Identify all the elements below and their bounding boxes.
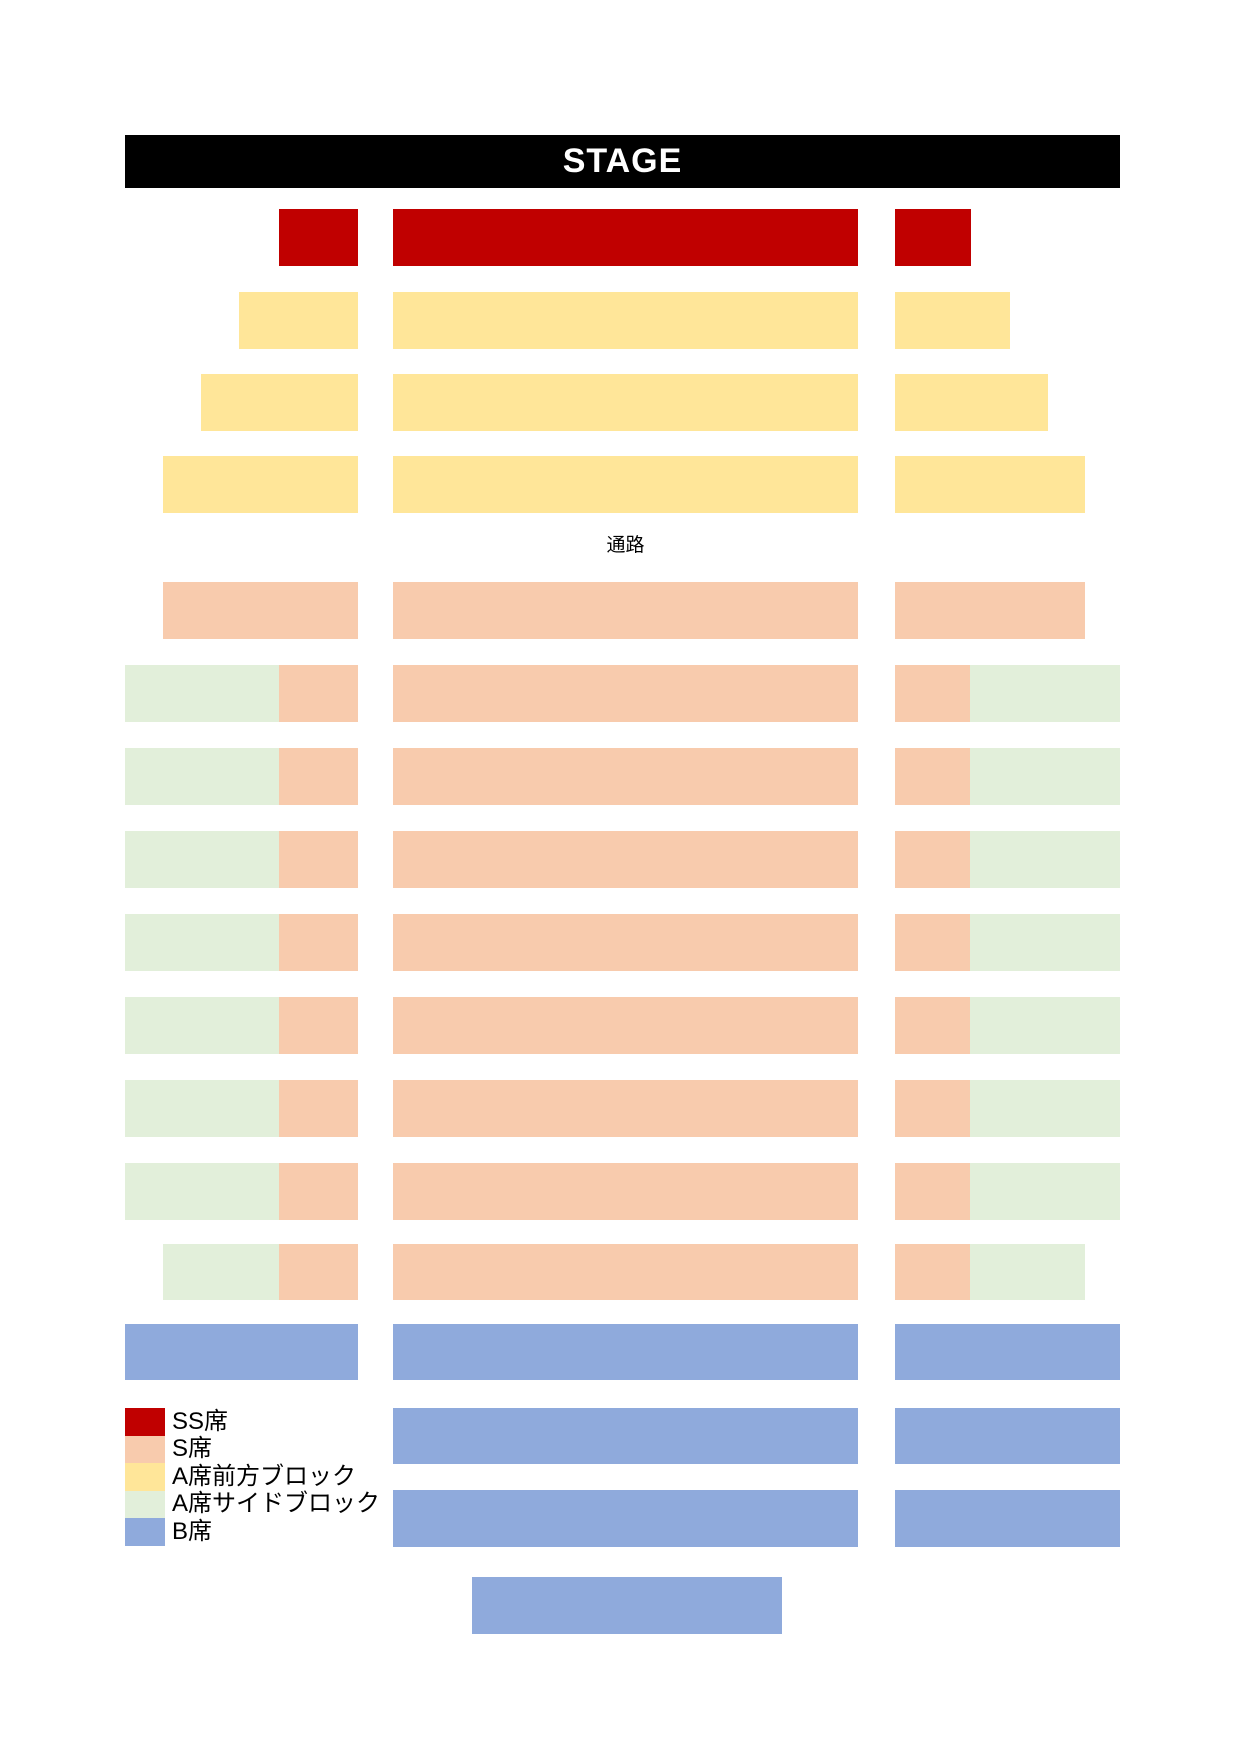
seat-block-s	[279, 665, 358, 722]
seat-block-a-side	[125, 665, 279, 722]
seat-block-a-front	[163, 456, 358, 513]
seat-block-a-side	[125, 914, 279, 971]
seat-block-s	[393, 582, 858, 639]
legend: SS席S席A席前方ブロックA席サイドブロックB席	[125, 1408, 380, 1546]
seat-block-b	[895, 1490, 1120, 1547]
seat-block-a-front	[895, 292, 1010, 349]
legend-label: A席前方ブロック	[172, 1465, 356, 1489]
seat-block-s	[279, 1244, 358, 1300]
seat-block-a-front	[393, 292, 858, 349]
seat-block-ss	[393, 209, 858, 266]
seat-block-a-side	[163, 1244, 279, 1300]
seat-block-s	[279, 1080, 358, 1137]
seat-block-s	[163, 582, 358, 639]
seat-block-b	[393, 1324, 858, 1380]
seat-block-s	[895, 997, 970, 1054]
seat-block-s	[279, 831, 358, 888]
seat-block-s	[895, 582, 1085, 639]
seat-block-a-side	[125, 748, 279, 805]
seat-block-ss	[279, 209, 358, 266]
seat-block-a-side	[125, 997, 279, 1054]
seat-block-s	[393, 665, 858, 722]
seat-block-s	[895, 1163, 970, 1220]
seat-block-a-front	[393, 374, 858, 431]
seat-block-s	[393, 1080, 858, 1137]
seat-block-s	[895, 914, 970, 971]
seat-block-b	[895, 1324, 1120, 1380]
legend-swatch-ss	[125, 1408, 165, 1436]
seat-block-a-front	[393, 456, 858, 513]
seat-block-s	[895, 831, 970, 888]
seat-block-s	[895, 1080, 970, 1137]
seat-block-s	[393, 748, 858, 805]
seat-block-b	[125, 1324, 358, 1380]
legend-item-s: S席	[125, 1436, 380, 1464]
seat-block-a-side	[970, 1244, 1085, 1300]
seat-block-a-side	[125, 831, 279, 888]
legend-item-a-side: A席サイドブロック	[125, 1491, 380, 1519]
seat-block-a-side	[125, 1080, 279, 1137]
legend-item-ss: SS席	[125, 1408, 380, 1436]
seat-block-a-side	[970, 748, 1120, 805]
seat-block-b	[472, 1577, 782, 1634]
seat-block-s	[279, 748, 358, 805]
seat-block-a-side	[970, 1080, 1120, 1137]
aisle-label: 通路	[393, 536, 858, 557]
seat-block-s	[895, 1244, 970, 1300]
seat-block-a-side	[970, 665, 1120, 722]
legend-item-b: B席	[125, 1518, 380, 1546]
seat-block-ss	[895, 209, 971, 266]
legend-swatch-a-side	[125, 1491, 165, 1519]
seat-block-s	[279, 997, 358, 1054]
seat-block-b	[393, 1490, 858, 1547]
legend-label: B席	[172, 1520, 212, 1544]
seat-block-a-side	[970, 1163, 1120, 1220]
seat-block-s	[895, 665, 970, 722]
seat-block-s	[393, 1244, 858, 1300]
legend-label: A席サイドブロック	[172, 1492, 380, 1516]
legend-item-a-front: A席前方ブロック	[125, 1463, 380, 1491]
seat-block-a-front	[239, 292, 358, 349]
seat-block-a-side	[970, 914, 1120, 971]
seat-block-a-front	[895, 374, 1048, 431]
seat-block-s	[895, 748, 970, 805]
legend-swatch-s	[125, 1436, 165, 1464]
legend-swatch-b	[125, 1518, 165, 1546]
legend-label: SS席	[172, 1410, 228, 1434]
seat-block-b	[393, 1408, 858, 1464]
seat-block-s	[393, 831, 858, 888]
seat-block-a-side	[125, 1163, 279, 1220]
seat-block-s	[393, 997, 858, 1054]
seat-block-b	[895, 1408, 1120, 1464]
seat-block-a-side	[970, 997, 1120, 1054]
seat-block-a-side	[970, 831, 1120, 888]
seating-chart: STAGE 通路 SS席S席A席前方ブロックA席サイドブロックB席	[0, 0, 1241, 1754]
seat-block-a-front	[201, 374, 358, 431]
seat-block-s	[393, 1163, 858, 1220]
seat-block-s	[393, 914, 858, 971]
legend-label: S席	[172, 1437, 212, 1461]
legend-swatch-a-front	[125, 1463, 165, 1491]
seat-block-s	[279, 914, 358, 971]
seat-block-a-front	[895, 456, 1085, 513]
seat-block-s	[279, 1163, 358, 1220]
